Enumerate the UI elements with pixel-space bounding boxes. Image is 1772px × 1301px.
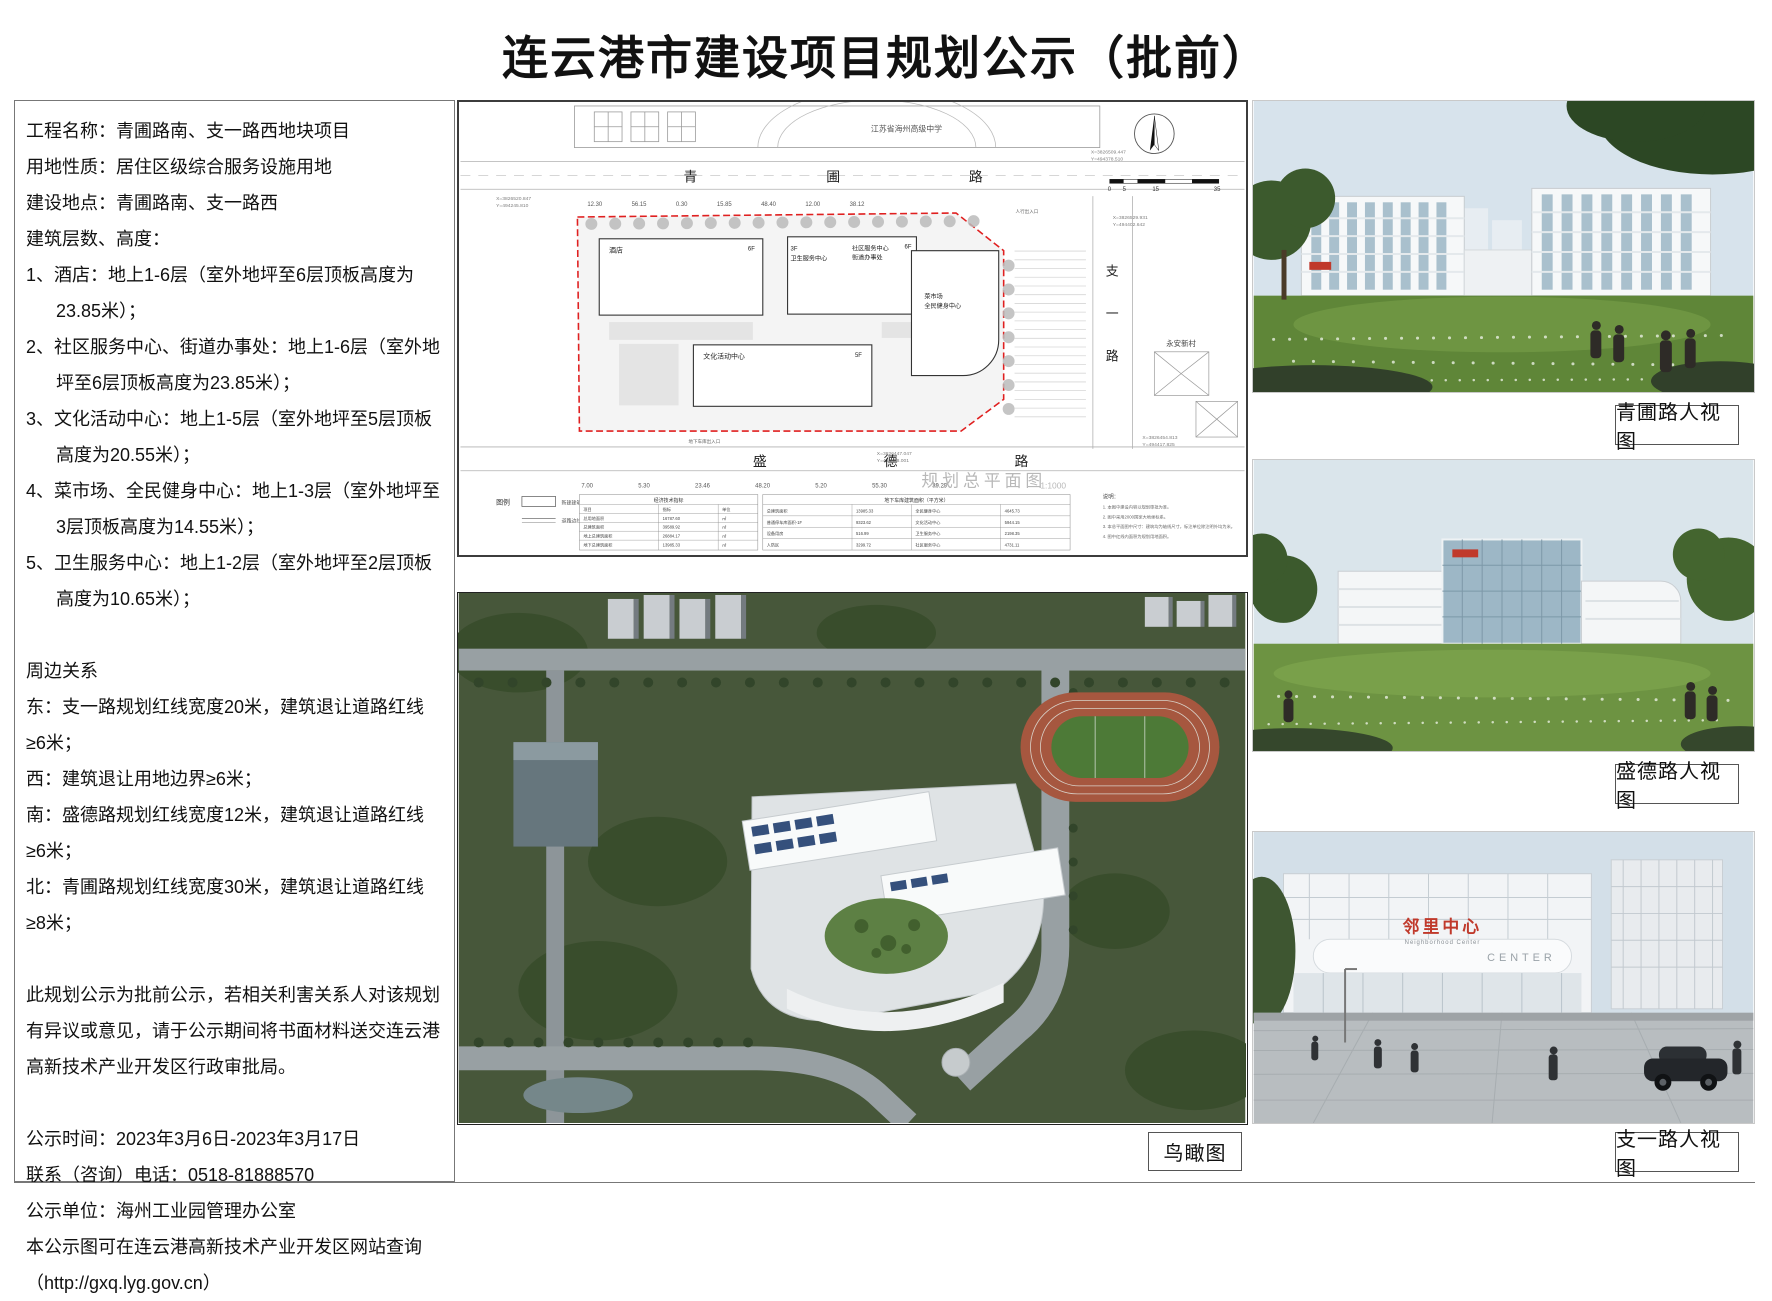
svg-text:X=3826454.813: X=3826454.813	[1142, 435, 1177, 441]
running-track	[1021, 692, 1220, 801]
item-community: 2、社区服务中心、街道办事处：地上1-6层（室外地坪至6层顶板高度为23.85米…	[26, 329, 443, 401]
svg-text:9323.62: 9323.62	[856, 520, 872, 525]
spacer	[26, 941, 443, 977]
glass-base	[1293, 973, 1581, 1013]
svg-text:0: 0	[1108, 187, 1112, 193]
svg-text:5: 5	[1123, 187, 1127, 193]
svg-text:文化活动中心: 文化活动中心	[703, 352, 745, 361]
svg-text:总用地面积: 总用地面积	[583, 515, 604, 521]
caption-aerial-view: 鸟瞰图	[1148, 1132, 1242, 1171]
website-note: 本公示图可在连云港高新技术产业开发区网站查询	[26, 1229, 443, 1265]
curb	[1254, 1013, 1754, 1021]
zhiyi-road-render: 邻里中心 Neighborhood Center CENTER	[1252, 831, 1755, 1124]
svg-text:X=3826509.447: X=3826509.447	[1091, 150, 1126, 156]
qingpu-road-render	[1252, 100, 1755, 393]
svg-text:516.99: 516.99	[856, 531, 869, 536]
floors-heading: 建筑层数、高度：	[26, 221, 443, 257]
svg-text:图例: 图例	[496, 497, 510, 506]
svg-text:单位: 单位	[722, 506, 730, 512]
svg-text:指标: 指标	[663, 506, 671, 512]
svg-text:地下车库建筑面积（平方米）: 地下车库建筑面积（平方米）	[884, 497, 948, 504]
svg-text:6F: 6F	[905, 245, 912, 251]
school-label: 江苏省海州高级中学	[871, 124, 942, 134]
svg-text:全民健身中心: 全民健身中心	[915, 507, 940, 513]
dark-office-tower	[513, 742, 598, 846]
caption-zhiyi-view: 支一路人视图	[1615, 1132, 1739, 1172]
notice-paragraph: 此规划公示为批前公示，若相关利害关系人对该规划有异议或意见，请于公示期间将书面材…	[26, 977, 443, 1085]
project-info-panel: 工程名称：青圃路南、支一路西地块项目 用地性质：居住区级综合服务设施用地 建设地…	[14, 100, 455, 1182]
svg-text:16787.60: 16787.60	[663, 516, 681, 521]
svg-text:地下车库出入口: 地下车库出入口	[688, 438, 720, 445]
north-compass-icon	[1135, 114, 1175, 154]
svg-text:15: 15	[1152, 187, 1159, 193]
dims-top: 12.30 56.15 0.30 15.85 48.40 12.00 38.12	[587, 202, 864, 208]
hotel-building	[599, 239, 763, 315]
background-tower	[1611, 860, 1722, 1009]
band-sign-text: CENTER	[1487, 952, 1556, 964]
svg-text:6F: 6F	[748, 247, 755, 253]
plan-scale-label: 1:1000	[1040, 481, 1066, 491]
svg-text:26884.17: 26884.17	[663, 534, 681, 539]
svg-text:一: 一	[1106, 306, 1119, 321]
svg-text:2198.35: 2198.35	[1005, 531, 1021, 536]
garage-table: 地下车库建筑面积（平方米） 总建筑面积13985.33 普通停车库面积-1F93…	[763, 495, 1070, 551]
east-road	[1093, 196, 1133, 449]
svg-text:5944.15: 5944.15	[1005, 520, 1021, 525]
svg-text:4. 图中红线内面积为规划用地面积。: 4. 图中红线内面积为规划用地面积。	[1103, 533, 1171, 540]
surroundings-heading: 周边关系	[26, 653, 443, 689]
svg-text:3. 本总平面图中尺寸：建筑均为轴线尺寸，标注单位除注明外均: 3. 本总平面图中尺寸：建筑均为轴线尺寸，标注单位除注明外均为米。	[1103, 523, 1235, 530]
item-culture: 3、文化活动中心：地上1-5层（室外地坪至5层顶板高度为20.55米）；	[26, 401, 443, 473]
svg-text:文化活动中心: 文化活动中心	[915, 519, 940, 525]
north-road-label: 青圃路	[683, 168, 1111, 184]
notice-period: 公示时间：2023年3月6日-2023年3月17日	[26, 1121, 443, 1157]
facade-sign	[1452, 549, 1478, 557]
plan-legend: 图例 新建建筑物 道路边线	[496, 497, 586, 525]
shengde-svg	[1253, 460, 1754, 751]
dims-bottom: 7.00 5.30 23.46 48.20 5.20 55.30 39.29	[581, 484, 947, 490]
south-setback: 南：盛德路规划红线宽度12米，建筑退让道路红线≥6米；	[26, 797, 443, 869]
svg-text:说明：: 说明：	[1103, 492, 1119, 500]
svg-text:4645.73: 4645.73	[1005, 508, 1021, 513]
shengde-road-render	[1252, 459, 1755, 752]
item-hotel: 1、酒店：地上1-6层（室外地坪至6层顶板高度为23.85米）；	[26, 257, 443, 329]
website-url: （http://gxq.lyg.gov.cn）	[26, 1265, 443, 1301]
lawn-highlight	[1274, 650, 1711, 698]
svg-text:总建筑面积: 总建筑面积	[583, 524, 604, 530]
village-label: 永安新村	[1166, 338, 1196, 348]
svg-text:设备用房: 设备用房	[767, 530, 784, 536]
qingpu-svg	[1253, 101, 1754, 392]
svg-text:社区服务中心: 社区服务中心	[915, 542, 940, 548]
svg-text:社区服务中心: 社区服务中心	[852, 245, 889, 253]
svg-text:道路边线: 道路边线	[562, 517, 582, 524]
svg-text:X=3826520.847: X=3826520.847	[496, 196, 531, 202]
building-right	[1532, 188, 1711, 295]
curved-wing	[1581, 581, 1680, 644]
zhiyi-svg: 邻里中心 Neighborhood Center CENTER	[1253, 832, 1754, 1123]
svg-text:经济技术指标: 经济技术指标	[654, 497, 684, 504]
svg-text:3299.72: 3299.72	[856, 543, 872, 548]
pond	[523, 1077, 632, 1113]
svg-text:酒店: 酒店	[609, 246, 623, 255]
land-use: 用地性质：居住区级综合服务设施用地	[26, 149, 443, 185]
svg-text:39589.92: 39589.92	[663, 525, 681, 530]
svg-text:5F: 5F	[855, 353, 862, 359]
link-building	[1464, 250, 1532, 296]
notice-unit: 公示单位：海州工业园管理办公室	[26, 1193, 443, 1229]
svg-text:Y=494378.510: Y=494378.510	[1091, 156, 1124, 162]
svg-text:13985.33: 13985.33	[663, 543, 681, 548]
spacer	[26, 1085, 443, 1121]
main-building: 邻里中心 Neighborhood Center CENTER	[1284, 874, 1592, 1013]
plaza-fountain	[942, 1048, 970, 1076]
svg-text:4731.11: 4731.11	[1005, 543, 1020, 548]
caption-qingpu-view: 青圃路人视图	[1615, 405, 1739, 445]
page-title: 连云港市建设项目规划公示（批前）	[0, 22, 1772, 88]
plan-notes: 说明： 1. 本图中建设内容以规划审批为准。 2. 图中采用2000国家大地坐标…	[1103, 492, 1235, 540]
spacer	[26, 617, 443, 653]
svg-text:地上总建筑面积: 地上总建筑面积	[583, 533, 612, 539]
svg-text:X=3826529.931: X=3826529.931	[1113, 215, 1148, 221]
svg-text:人防区: 人防区	[767, 542, 779, 548]
item-health: 5、卫生服务中心：地上1-2层（室外地坪至2层顶板高度为10.65米）；	[26, 545, 443, 617]
svg-text:卫生服务中心: 卫生服务中心	[915, 530, 940, 536]
scale-bar: 0 5 15 35	[1108, 179, 1221, 193]
item-market: 4、菜市场、全民健身中心：地上1-3层（室外地坪至3层顶板高度为14.55米）；	[26, 473, 443, 545]
plan-title: 规划总平面图	[921, 472, 1046, 491]
north-setback: 北：青圃路规划红线宽度30米，建筑退让道路红线≥8米；	[26, 869, 443, 941]
svg-text:普通停车库面积-1F: 普通停车库面积-1F	[767, 519, 803, 525]
south-road-label: 盛德路	[753, 453, 1145, 469]
indicator-table: 经济技术指标 项目指标单位 总用地面积16787.60㎡ 总建筑面积39589.…	[579, 495, 757, 551]
lawn-highlight	[1293, 297, 1710, 353]
svg-text:支: 支	[1106, 263, 1119, 278]
caption-shengde-view: 盛德路人视图	[1615, 764, 1739, 804]
svg-text:Y=494245.810: Y=494245.810	[496, 203, 529, 209]
svg-text:35: 35	[1214, 187, 1221, 193]
building-sign-subtext: Neighborhood Center	[1405, 940, 1481, 946]
svg-text:1. 本图中建设内容以规划审批为准。: 1. 本图中建设内容以规划审批为准。	[1103, 503, 1171, 510]
svg-text:卫生服务中心: 卫生服务中心	[791, 255, 828, 263]
east-road-label: 支 一 路	[1106, 263, 1119, 363]
school-block	[574, 102, 1099, 148]
svg-text:总建筑面积: 总建筑面积	[767, 507, 788, 513]
svg-text:人行出入口: 人行出入口	[1016, 208, 1039, 215]
location: 建设地点：青圃路南、支一路西	[26, 185, 443, 221]
aerial-svg	[458, 593, 1246, 1123]
market-building	[911, 251, 998, 376]
svg-text:项目: 项目	[583, 507, 591, 512]
facade-sign	[1309, 262, 1331, 270]
site-plan-svg: 江苏省海州高级中学 青圃路 12.30 56.15 0.30 15.85 48.…	[459, 102, 1246, 555]
svg-text:13985.33: 13985.33	[856, 508, 874, 513]
svg-text:全民健身中心: 全民健身中心	[924, 302, 961, 310]
contact-phone: 联系（咨询）电话：0518-81888570	[26, 1157, 443, 1193]
bottom-border-line	[14, 1182, 1755, 1183]
svg-text:2. 图中采用2000国家大地坐标系。: 2. 图中采用2000国家大地坐标系。	[1103, 513, 1168, 520]
project-name: 工程名称：青圃路南、支一路西地块项目	[26, 113, 443, 149]
building-sign-text: 邻里中心	[1403, 916, 1482, 936]
svg-text:Y=494402.642: Y=494402.642	[1113, 222, 1146, 228]
site-plan-drawing: 江苏省海州高级中学 青圃路 12.30 56.15 0.30 15.85 48.…	[457, 100, 1248, 557]
svg-text:3F: 3F	[791, 247, 798, 253]
village-houses	[1154, 352, 1237, 437]
west-setback: 西：建筑退让用地边界≥6米；	[26, 761, 443, 797]
aerial-render	[457, 592, 1248, 1125]
svg-text:路: 路	[1106, 349, 1119, 364]
east-setback: 东：支一路规划红线宽度20米，建筑退让道路红线≥6米；	[26, 689, 443, 761]
svg-text:菜市场: 菜市场	[924, 292, 942, 300]
svg-text:地下总建筑面积: 地下总建筑面积	[583, 542, 612, 548]
svg-text:街道办事处: 街道办事处	[852, 254, 883, 262]
